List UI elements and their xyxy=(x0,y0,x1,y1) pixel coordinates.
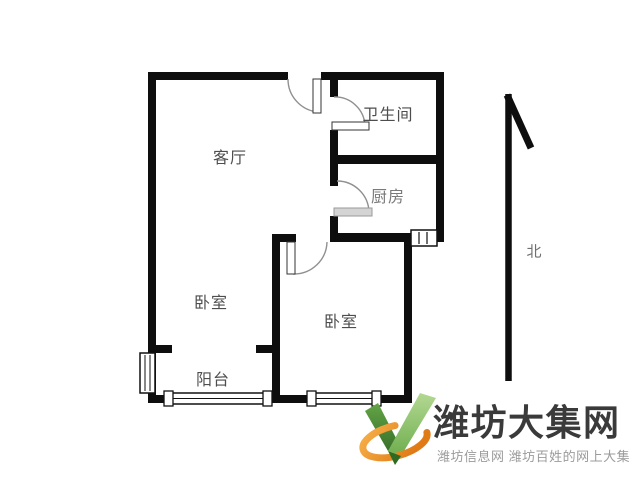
room-label-bedroom-left: 卧室 xyxy=(194,289,228,313)
bedroom-door-arc xyxy=(293,242,327,274)
site-name-watermark: 潍坊大集网 xyxy=(433,401,621,444)
kitchen-door-arc xyxy=(337,181,369,212)
room-label-living-room: 客厅 xyxy=(213,144,247,168)
north-arrow-icon xyxy=(507,94,531,381)
room-label-bathroom: 卫生间 xyxy=(362,101,413,125)
room-label-balcony: 阳台 xyxy=(196,366,230,390)
entry-door-leaf xyxy=(313,79,321,113)
balcony-side-window xyxy=(140,353,155,393)
kitchen-small-window xyxy=(411,230,437,246)
room-label-bedroom-right: 卧室 xyxy=(324,308,358,332)
north-label: 北 xyxy=(526,241,541,262)
floorplan-image: 客厅 卫生间 厨房 卧室 卧室 阳台 北 潍坊大集网 潍坊信息网 潍坊百姓的网上… xyxy=(0,0,640,480)
balcony-bottom-window xyxy=(164,391,272,406)
room-label-kitchen: 厨房 xyxy=(371,183,405,207)
bedroom-bottom-window xyxy=(307,391,381,406)
kitchen-door-leaf xyxy=(334,208,372,216)
site-tagline-watermark: 潍坊信息网 潍坊百姓的网上大集 xyxy=(437,446,630,465)
bedroom-door-leaf xyxy=(287,242,295,274)
